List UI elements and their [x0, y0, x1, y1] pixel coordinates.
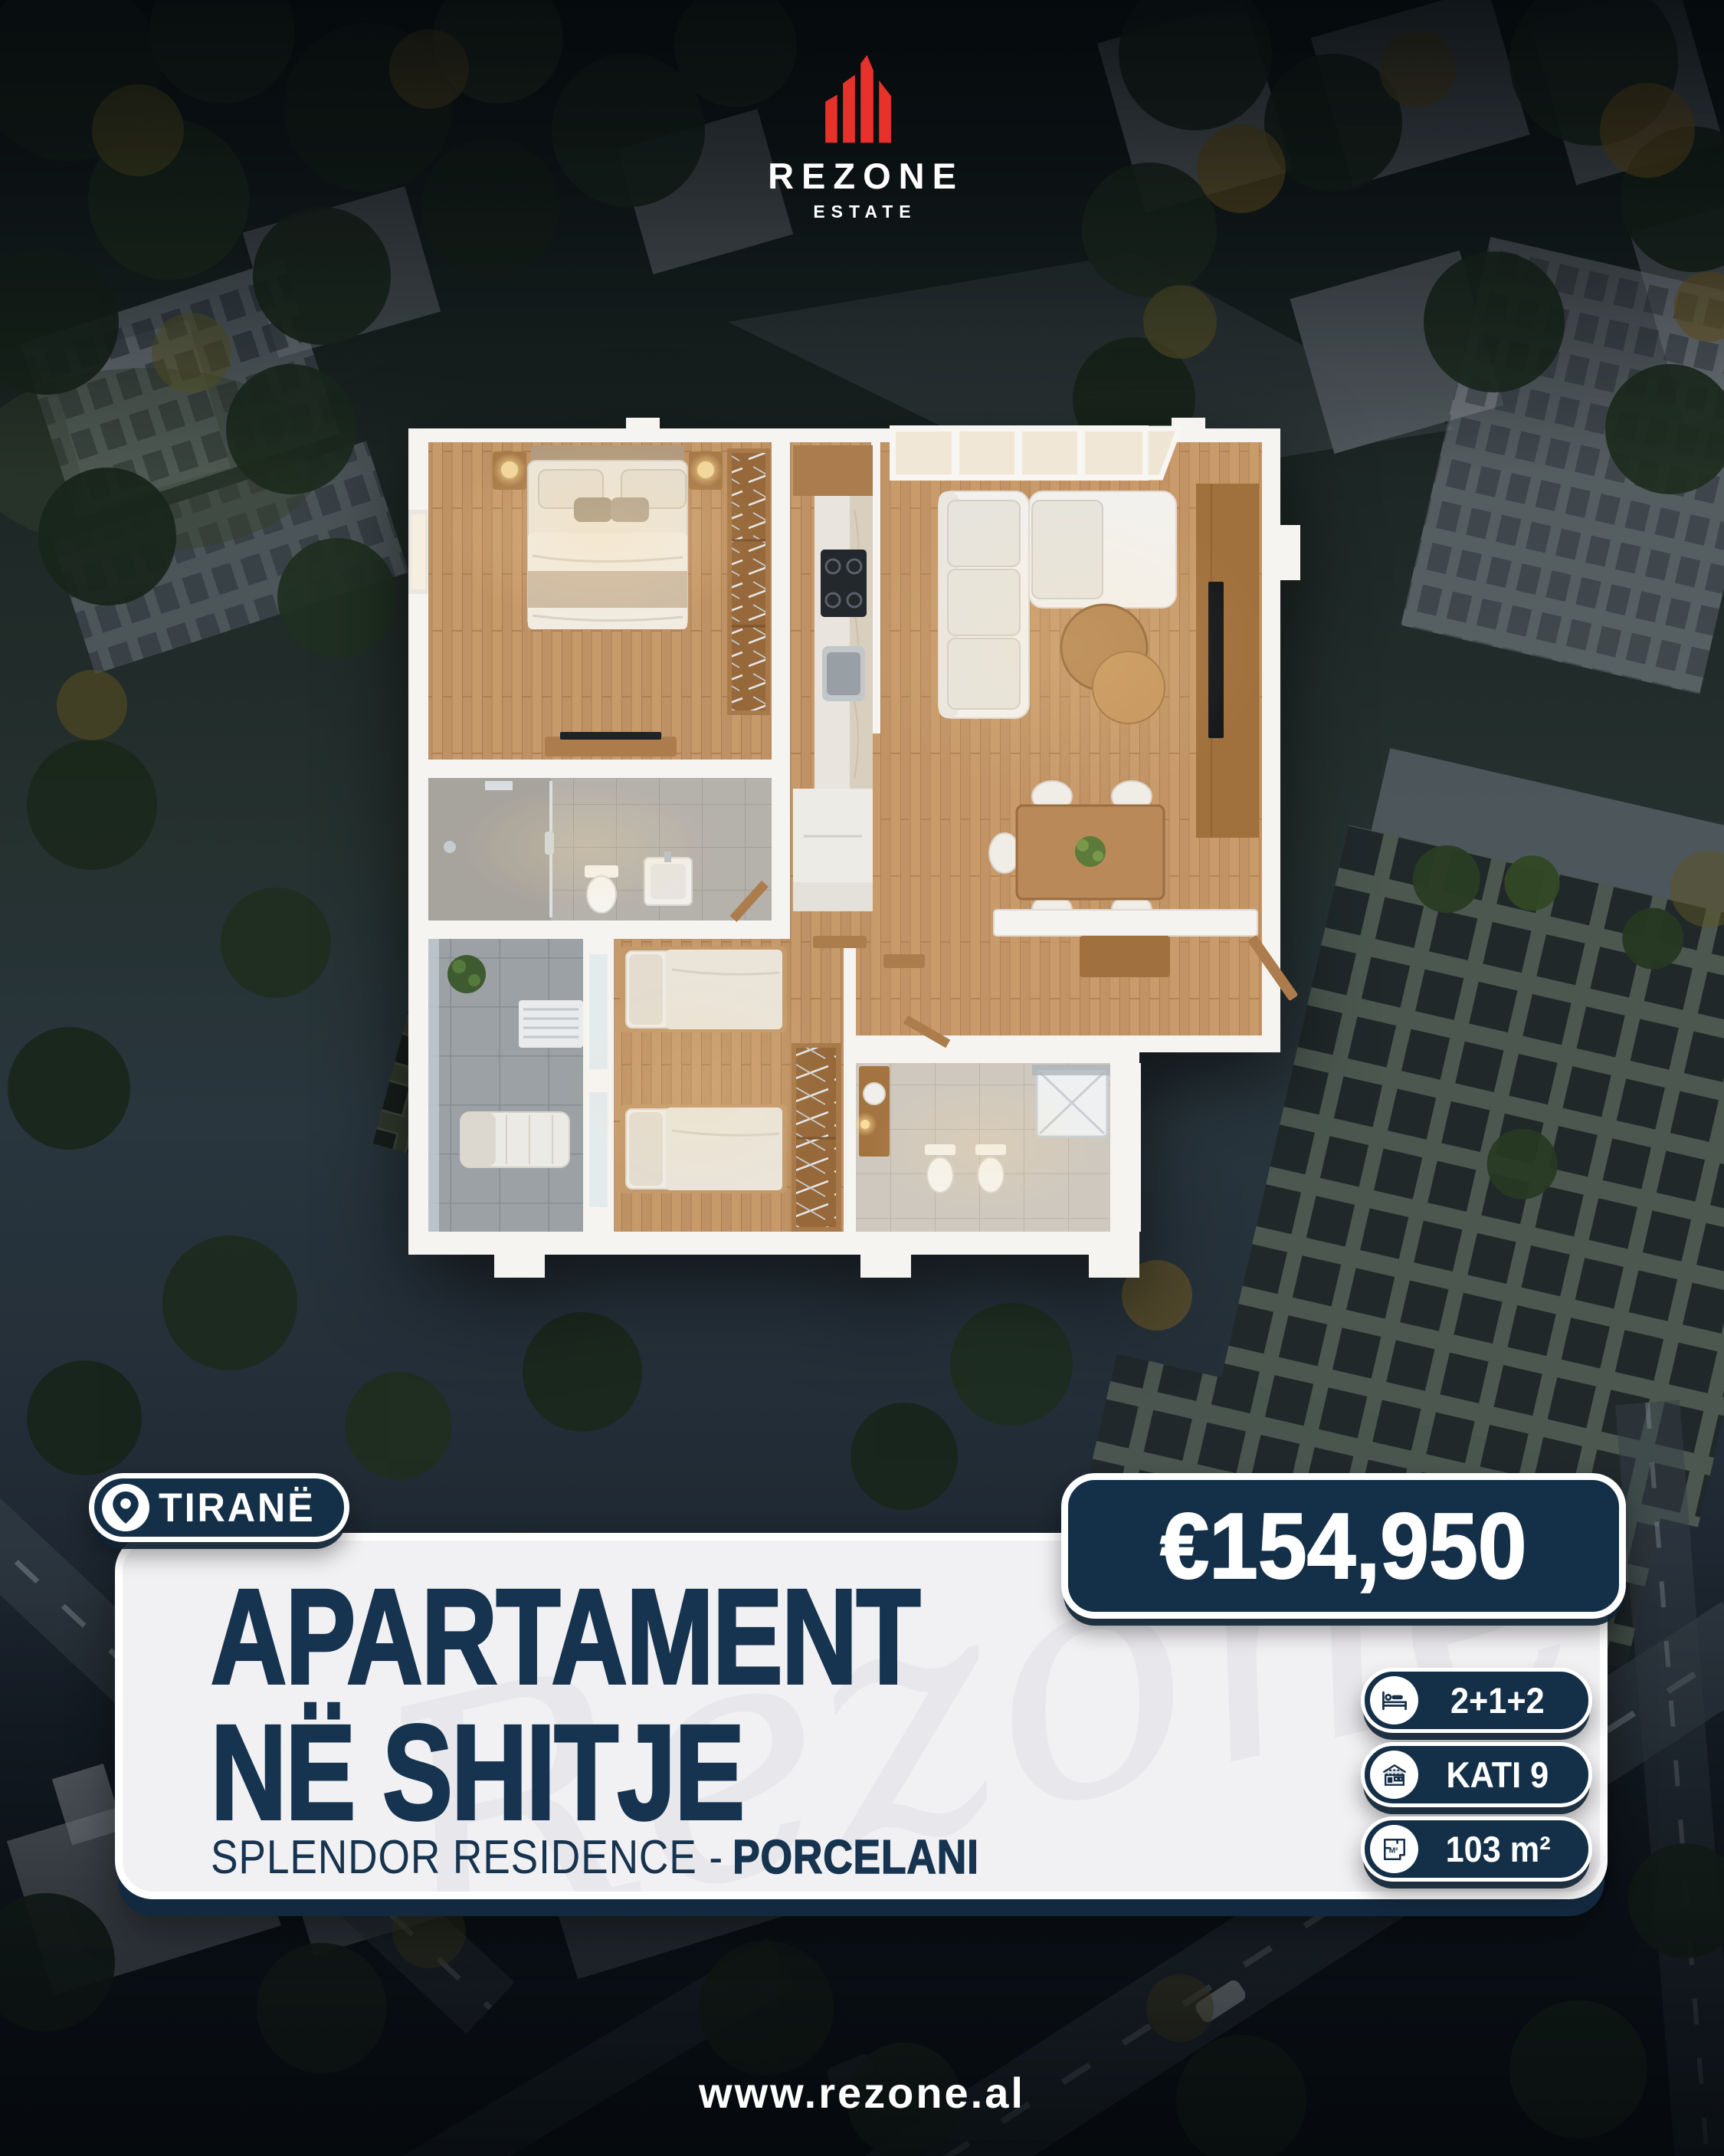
listing-title: APARTAMENT NË SHITJE — [211, 1570, 919, 1841]
spec-rooms-value: 2+1+2 — [1450, 1679, 1555, 1721]
spec-list: 2+1+2 KATI 9 — [1361, 1668, 1592, 1891]
area-icon-disc: M² — [1370, 1825, 1418, 1873]
location-badge: TIRANË — [89, 1473, 349, 1542]
spec-floor-value: KATI 9 — [1447, 1754, 1560, 1796]
residence-name: SPLENDOR RESIDENCE - — [211, 1831, 723, 1884]
website-url: www.rezone.al — [0, 2068, 1724, 2118]
price-badge: €154,950 — [1061, 1473, 1626, 1619]
bed-icon-disc — [1370, 1676, 1418, 1724]
spec-area: M² 103 m² — [1361, 1816, 1592, 1882]
bed-icon — [1379, 1685, 1410, 1716]
location-pin-icon — [111, 1491, 140, 1524]
building-floors-icon — [1379, 1760, 1410, 1790]
location-label: TIRANË — [159, 1485, 334, 1531]
brand-tagline: ESTATE — [760, 202, 964, 222]
flyer: REZONE ESTATE — [0, 0, 1724, 2156]
spec-area-value: 103 m² — [1445, 1828, 1562, 1870]
rezone-building-bars-icon — [825, 54, 899, 144]
price-amount: €154,950 — [1160, 1492, 1526, 1600]
brand-logo: REZONE ESTATE — [760, 54, 964, 222]
location-pin-disc — [102, 1484, 149, 1531]
svg-text:M²: M² — [1388, 1846, 1398, 1855]
floor-area-icon: M² — [1379, 1834, 1410, 1865]
title-line-1: APARTAMENT — [211, 1562, 919, 1712]
title-line-2: NË SHITJE — [211, 1698, 743, 1848]
floor-plan-3d — [402, 418, 1303, 1288]
listing-subtitle: SPLENDOR RESIDENCE -PORCELANI — [211, 1830, 979, 1885]
brand-name: REZONE — [760, 155, 964, 197]
building-icon-disc — [1370, 1751, 1418, 1799]
spec-floor: KATI 9 — [1361, 1742, 1592, 1807]
neighborhood-name: PORCELANI — [733, 1831, 979, 1884]
spec-rooms: 2+1+2 — [1361, 1668, 1592, 1733]
